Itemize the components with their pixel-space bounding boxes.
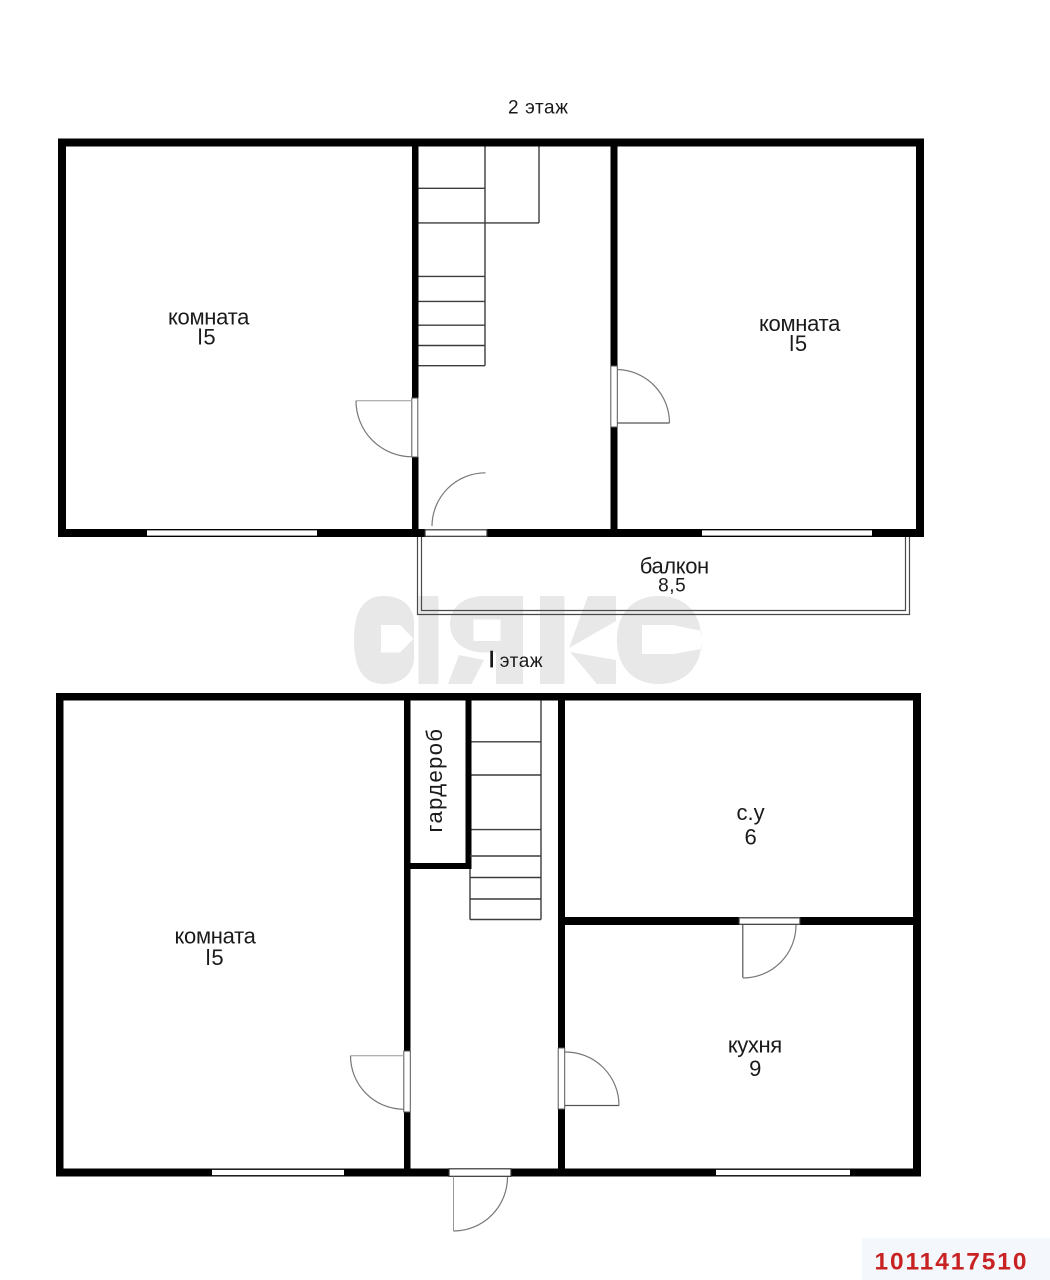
svg-text:кухня: кухня [728,1032,782,1057]
svg-text:6: 6 [744,824,756,849]
svg-text:этаж: этаж [500,651,543,672]
svg-text:l5: l5 [198,325,217,350]
svg-text:l5: l5 [789,331,808,356]
svg-text:2 этаж: 2 этаж [508,98,569,119]
svg-text:8,5: 8,5 [658,576,686,597]
svg-text:с.у: с.у [737,800,765,825]
svg-text:l5: l5 [206,945,225,970]
svg-text:гардероб: гардероб [422,728,447,833]
svg-text:1011417510: 1011417510 [874,1249,1028,1276]
svg-text:9: 9 [749,1056,761,1081]
